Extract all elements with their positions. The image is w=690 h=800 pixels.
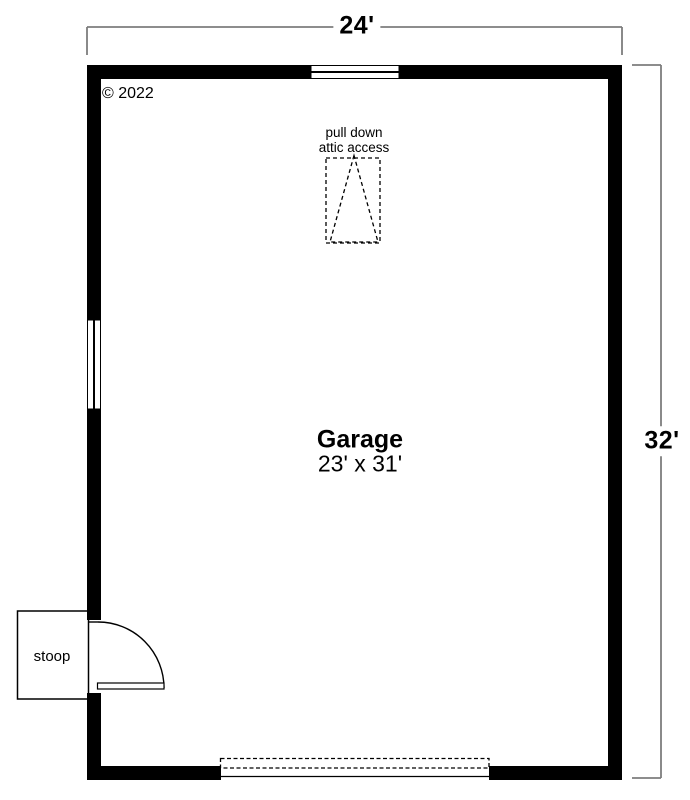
garage-floor-plan: 24' 32' © 2022 pull down attic access Ga… [0,0,690,800]
garage-door-opening [221,759,490,781]
exterior-walls [87,65,622,780]
stoop-label: stoop [34,649,71,666]
floor-plan-drawing [0,0,690,800]
door-swing-arc [98,622,164,688]
top-window [311,66,399,79]
copyright-text: © 2022 [102,85,154,103]
room-size-label: 23' x 31' [318,451,402,476]
attic-hatch-outline [326,158,380,243]
top-dimension-label: 24' [333,11,380,41]
attic-access-label: pull down attic access [319,125,390,155]
attic-ladder-triangle [330,156,378,243]
door-leaf [98,683,165,689]
right-dimension-label: 32' [638,426,685,456]
attic-access-label-line1: pull down [319,125,390,140]
attic-access-label-line2: attic access [319,140,390,155]
left-window [88,320,101,409]
attic-access-hatch [326,156,380,244]
